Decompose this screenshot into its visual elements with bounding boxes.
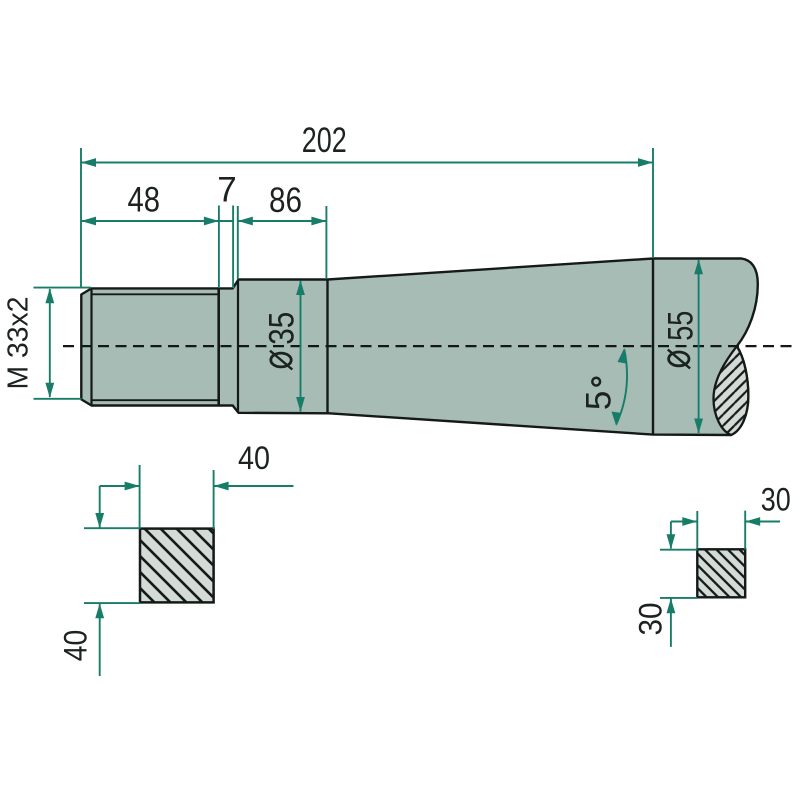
svg-text:48: 48 <box>128 180 161 219</box>
svg-text:40: 40 <box>58 630 94 662</box>
svg-text:30: 30 <box>633 603 669 636</box>
svg-text:M 33x2: M 33x2 <box>3 297 35 390</box>
svg-text:30: 30 <box>761 481 791 517</box>
svg-text:86: 86 <box>269 181 302 220</box>
svg-text:5: 5 <box>580 391 619 410</box>
svg-text:40: 40 <box>238 440 270 476</box>
svg-text:7: 7 <box>217 171 236 210</box>
svg-text:202: 202 <box>302 121 347 160</box>
svg-text:55: 55 <box>662 311 701 341</box>
svg-text:35: 35 <box>263 312 302 345</box>
